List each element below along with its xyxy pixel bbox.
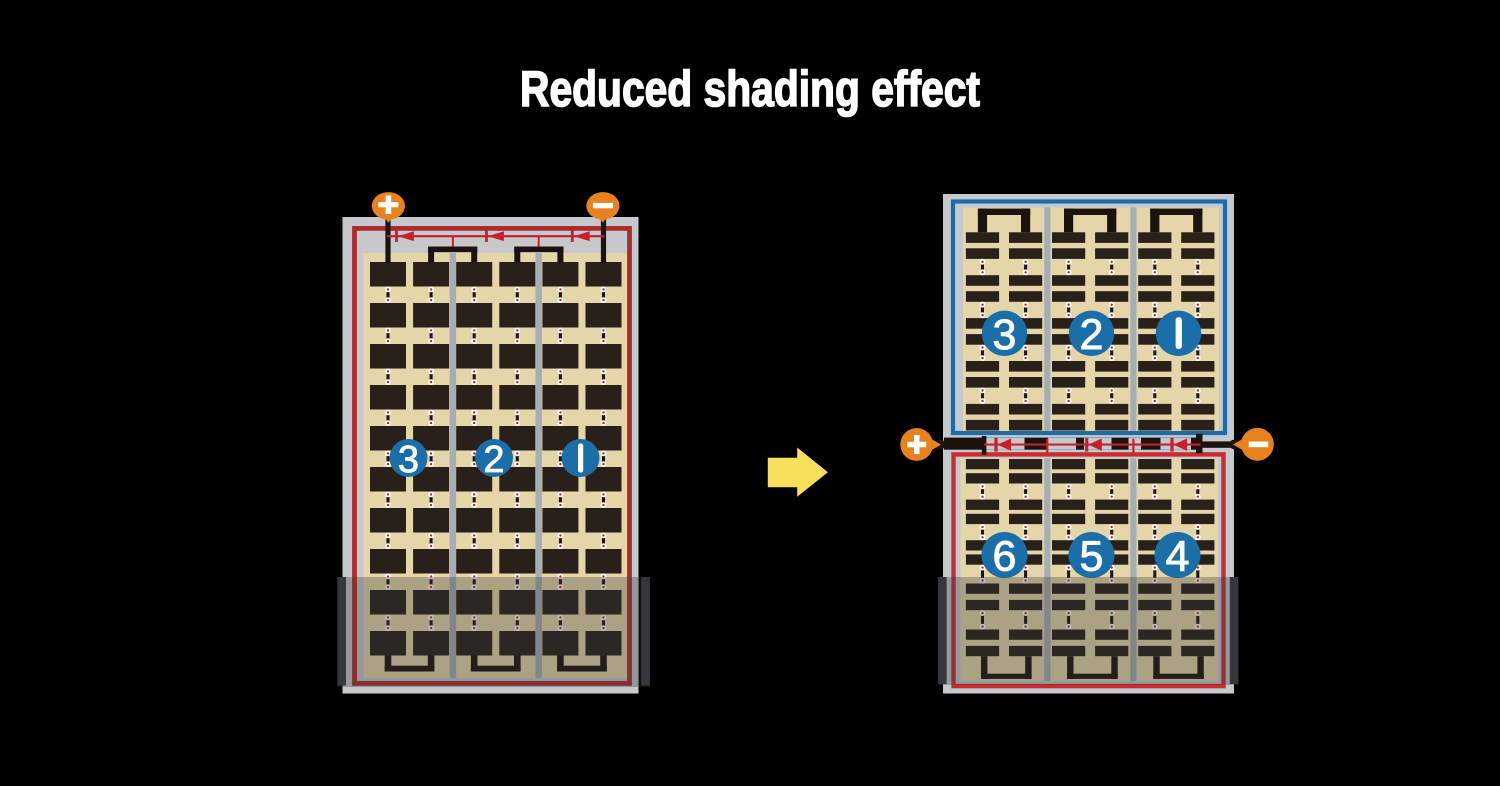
svg-text:6: 6 [993,533,1017,581]
svg-text:Reduced shading effect: Reduced shading effect [520,61,980,117]
svg-text:2: 2 [1080,311,1104,359]
svg-text:4: 4 [1166,533,1190,581]
svg-text:3: 3 [993,311,1017,359]
svg-text:5: 5 [1080,533,1104,581]
svg-text:2: 2 [483,439,504,481]
svg-text:3: 3 [398,439,419,481]
